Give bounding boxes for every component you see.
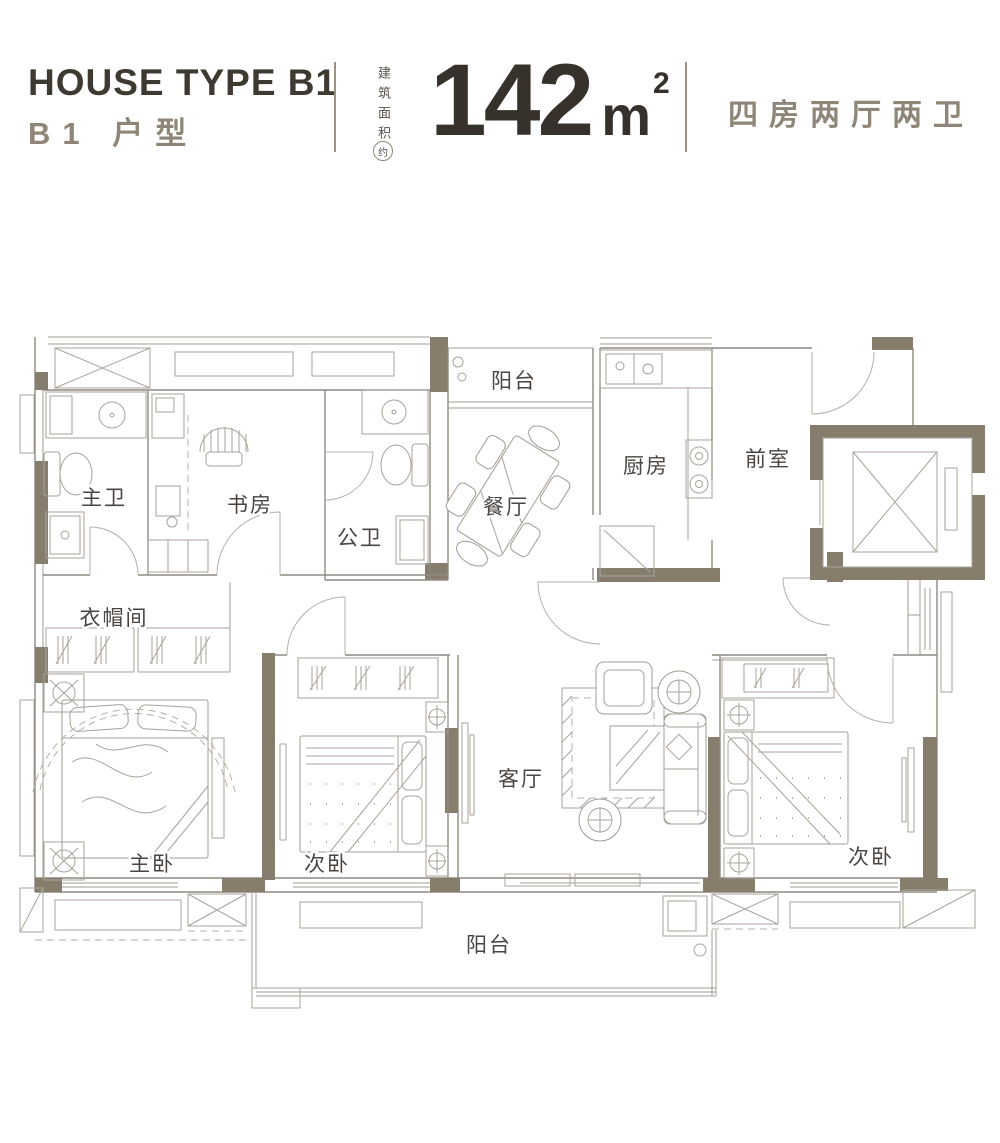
wardrobe-icon: [298, 658, 438, 698]
tv-icon: [462, 723, 474, 823]
side-table-icon: [579, 799, 621, 841]
nightstand-icon: [426, 846, 448, 876]
drain-icon: [694, 944, 706, 956]
bookshelf-icon: [148, 540, 208, 572]
stove-icon: [686, 440, 712, 498]
washer-icon: [663, 896, 707, 936]
wardrobe-icon: [46, 628, 230, 672]
layout-summary: 四房两厅两卫: [728, 90, 974, 134]
room-master-bedroom: [33, 674, 235, 880]
bed-icon: [300, 736, 426, 852]
kitchen-sink-icon: [600, 350, 712, 388]
bed-icon: [33, 700, 235, 858]
printer-icon: [156, 486, 180, 527]
room-label-study: 书房: [227, 494, 273, 517]
room-label-master-bath: 主卫: [81, 487, 127, 510]
room-label-kitchen: 厨房: [623, 455, 669, 478]
room-master-bath: [44, 392, 146, 558]
room-label-balcony-bottom: 阳台: [466, 934, 512, 957]
room-label-balcony-top: 阳台: [491, 370, 537, 393]
bottom-windows: [20, 888, 975, 940]
bench-icon: [212, 738, 224, 838]
room-label-bedroom-2: 次卧: [304, 853, 350, 876]
room-label-guest-bath: 公卫: [337, 527, 383, 550]
nightstand-icon: [724, 848, 754, 878]
room-bedroom-3: [722, 658, 914, 878]
area-unit: m: [601, 83, 651, 148]
corner-window: [903, 890, 975, 928]
nightstand-icon: [724, 700, 754, 730]
side-table-icon: [658, 671, 700, 713]
sink-icon: [362, 390, 428, 434]
divider: [685, 62, 687, 152]
header: HOUSE TYPE B1 B1 户型 建筑面积 约 142 m 2 四房两厅两…: [0, 0, 1000, 180]
ac-unit-icon: [55, 348, 150, 388]
room-label-bedroom-3: 次卧: [848, 846, 894, 869]
room-label-cloakroom: 衣帽间: [80, 607, 149, 630]
page-title: HOUSE TYPE B1: [28, 62, 337, 104]
desk-chair-icon: [200, 427, 248, 466]
toilet-icon: [381, 444, 428, 486]
room-study: [148, 394, 248, 572]
area-label-approx: 约: [373, 141, 393, 161]
room-label-dining: 餐厅: [483, 496, 529, 519]
sliding-door: [505, 874, 640, 886]
tv-icon: [280, 744, 286, 840]
shower-icon: [46, 512, 84, 558]
ac-unit-icon: [188, 894, 246, 931]
nightstand-icon: [426, 702, 448, 732]
room-label-living: 客厅: [498, 768, 544, 791]
armchair-icon: [596, 662, 652, 714]
sofa-icon: [664, 714, 706, 824]
ac-unit-icon: [712, 894, 778, 929]
bed-icon: [724, 732, 848, 844]
washer-icon: [396, 516, 428, 564]
area-value: 142 m 2: [430, 52, 670, 152]
area-number: 142: [430, 52, 591, 149]
room-label-master-bedroom: 主卧: [129, 853, 175, 876]
room-label-foyer: 前室: [745, 448, 791, 471]
coffee-table-icon: [610, 726, 666, 790]
desk-icon: [152, 394, 188, 535]
area-unit-superscript: 2: [653, 67, 670, 101]
page-subtitle: B1 户型: [28, 108, 198, 153]
tv-icon: [902, 748, 914, 832]
sink-icon: [46, 392, 146, 438]
wardrobe-icon: [722, 658, 834, 698]
corner-window: [20, 888, 43, 932]
room-bedroom-2: [280, 658, 448, 876]
divider: [334, 62, 336, 152]
bay-windows-top: [175, 352, 394, 376]
area-label: 建筑面积: [374, 66, 393, 146]
